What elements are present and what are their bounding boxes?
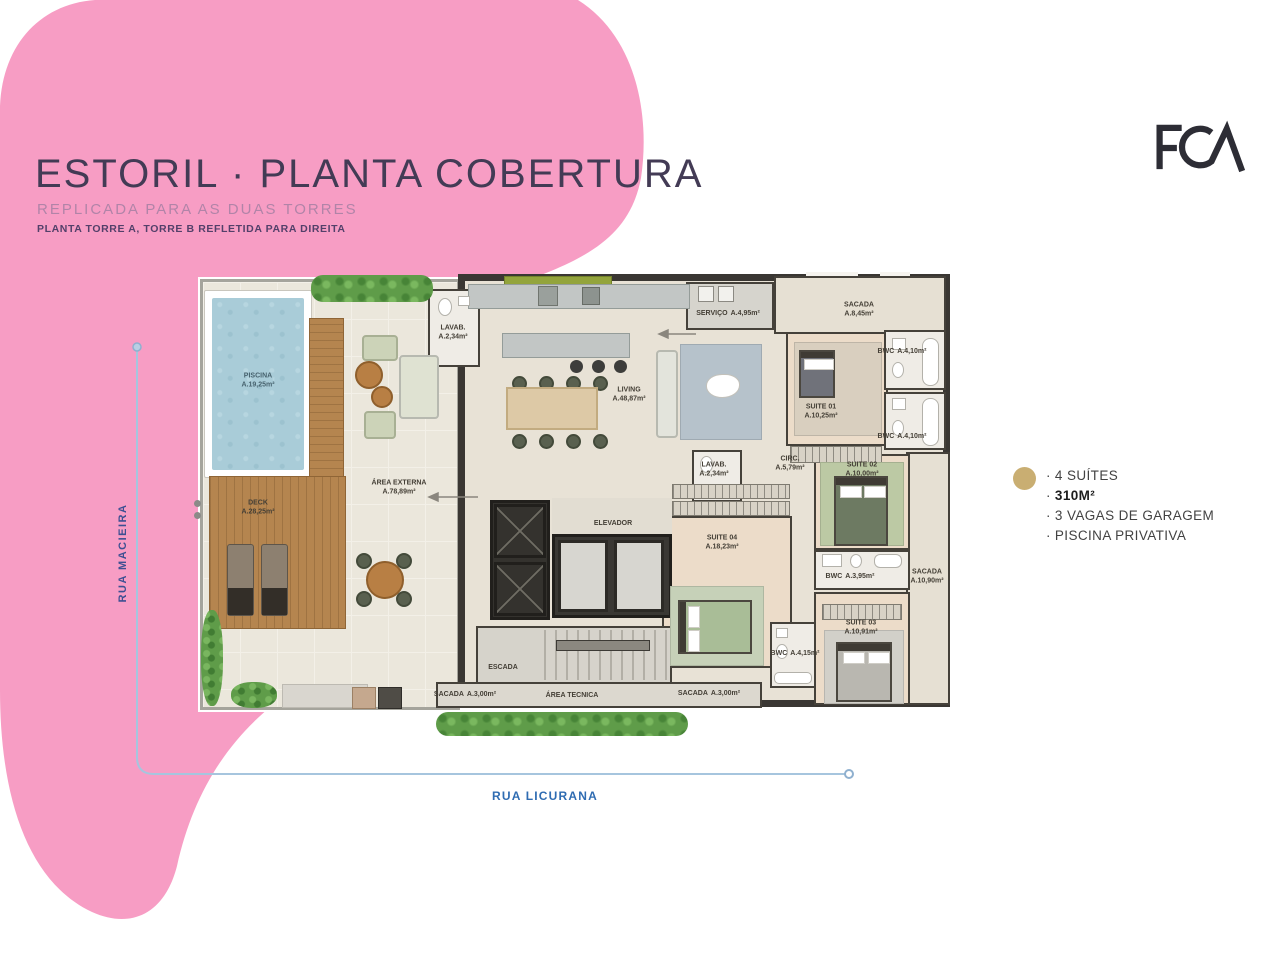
- sink-kitchen: [582, 287, 600, 305]
- fca-logo: [1150, 118, 1246, 183]
- terrace-round-table: [366, 561, 404, 599]
- pin-dot-1: [194, 500, 201, 507]
- service-box-1: [352, 687, 376, 709]
- plant-left: [201, 610, 223, 706]
- room-label-lavab1: LAVAB.A.2,34m²: [438, 325, 467, 342]
- hedge-bottom: [436, 712, 688, 736]
- page-note: PLANTA TORRE A, TORRE B REFLETIDA PARA D…: [37, 223, 346, 235]
- service-box-2: [378, 687, 402, 709]
- outdoor-side-table-2: [371, 386, 393, 408]
- room-label-bwc3: BWCA.3,95m²: [826, 573, 875, 582]
- room-label-sacada2: SACADAA.10,90m²: [910, 569, 943, 586]
- outdoor-armchair-2: [364, 411, 396, 439]
- room-label-sacada3: SACADAA.3,00m²: [434, 691, 496, 700]
- room-label-sacada4: SACADAA.3,00m²: [678, 690, 740, 699]
- feature-pool: ·PISCINA PRIVATIVA: [1046, 526, 1214, 546]
- pin-dot-2: [194, 512, 201, 519]
- room-label-escada: ESCADA: [488, 664, 518, 673]
- feature-suites: ·4 SUÍTES: [1046, 466, 1214, 486]
- kitchen-island: [502, 333, 630, 358]
- dryer: [718, 286, 734, 302]
- lavab1-toilet: [438, 298, 452, 316]
- room-label-elevador: ELEVADOR: [594, 520, 632, 529]
- suite03-wardrobe: [822, 604, 902, 620]
- dining-chair-7: [566, 434, 581, 449]
- stool-1: [570, 360, 583, 373]
- feature-garage: ·3 VAGAS DE GARAGEM: [1046, 506, 1214, 526]
- terrace-chair-1: [356, 553, 372, 569]
- bwc3-tub: [874, 554, 902, 568]
- plant-corner: [231, 682, 277, 708]
- cooktop: [538, 286, 558, 306]
- elevator-car-2: [614, 540, 664, 612]
- room-label-suite01: SUITE 01A.10,25m²: [804, 404, 837, 421]
- stool-3: [614, 360, 627, 373]
- washer: [698, 286, 714, 302]
- room-label-suite03: SUITE 03A.10,91m²: [844, 620, 877, 637]
- page-subtitle: REPLICADA PARA AS DUAS TORRES: [37, 201, 358, 218]
- outdoor-side-table-1: [355, 361, 383, 389]
- dining-chair-5: [512, 434, 527, 449]
- room-label-bwc1: BWCA.4,10m²: [878, 348, 927, 357]
- street-label-rua-macieira: RUA MACIEIRA: [117, 483, 131, 623]
- room-label-living: LIVINGA.48,87m²: [612, 387, 645, 404]
- dining-chair-8: [593, 434, 608, 449]
- bwc2-sink: [892, 398, 906, 410]
- stairs-steps: [544, 630, 668, 680]
- outdoor-sofa: [399, 355, 439, 419]
- terrace-chair-3: [356, 591, 372, 607]
- street-line-end-dot: [845, 770, 853, 778]
- elevator-hall: [552, 498, 672, 534]
- bwc1-toilet: [892, 362, 904, 378]
- street-label-rua-licurana: RUA LICURANA: [492, 789, 598, 803]
- bwc4-tub: [774, 672, 812, 684]
- room-label-circ: CIRC.A.5,79m²: [775, 456, 804, 473]
- sun-lounger-1: [227, 544, 254, 616]
- feature-area: ·310M²: [1046, 486, 1214, 506]
- outdoor-armchair-1: [362, 335, 398, 361]
- bwc4-sink: [776, 628, 788, 638]
- kitchen-counter: [468, 284, 690, 309]
- features-list: ·4 SUÍTES ·310M² ·3 VAGAS DE GARAGEM ·PI…: [1046, 466, 1214, 546]
- dining-table: [506, 387, 598, 430]
- elevator-shaft-1: [494, 504, 546, 558]
- suite02-bed: [834, 476, 888, 546]
- hedge-top: [311, 275, 433, 302]
- fca-logo-icon: [1150, 118, 1246, 178]
- room-label-sacada1: SACADAA.8,45m²: [844, 302, 874, 319]
- gold-bullet-icon: [1013, 467, 1036, 490]
- bwc1-tub: [922, 338, 939, 386]
- room-label-suite04: SUITE 04A.18,23m²: [705, 535, 738, 552]
- room-label-lavab2: LAVAB.A.2,34m²: [699, 462, 728, 479]
- stairs-rail: [556, 640, 650, 651]
- page-title: ESTORIL · PLANTA COBERTURA: [35, 152, 703, 197]
- corridor-wardrobe-2: [672, 501, 790, 516]
- elevator-shaft-2: [494, 562, 546, 616]
- room-label-suite02: SUITE 02A.10,00m²: [845, 462, 878, 479]
- sun-lounger-2: [261, 544, 288, 616]
- room-label-area-externa: ÁREA EXTERNAA.78,89m²: [372, 480, 427, 497]
- suite04-bed: [678, 600, 752, 654]
- lavab1-sink: [458, 296, 470, 306]
- bwc3-sink: [822, 554, 842, 567]
- room-label-deck: DECKA.28,25m²: [241, 500, 274, 517]
- elevator-car-1: [558, 540, 608, 612]
- room-label-bwc4: BWCA.4,15m²: [771, 650, 820, 659]
- room-label-servico: SERVIÇOA.4,95m²: [696, 310, 760, 319]
- room-label-bwc2: BWCA.4,10m²: [878, 433, 927, 442]
- corridor-wardrobe-1: [672, 484, 790, 499]
- suite01-bed: [799, 350, 835, 398]
- bwc3-toilet: [850, 554, 862, 568]
- dining-chair-6: [539, 434, 554, 449]
- suite03-bed: [836, 642, 892, 702]
- living-sofa: [656, 350, 678, 438]
- deck-strip: [309, 318, 344, 478]
- room-label-area-tecnica: ÁREA TECNICA: [546, 692, 599, 701]
- stool-2: [592, 360, 605, 373]
- street-line-start-dot: [133, 343, 141, 351]
- room-label-piscina: PISCINAA.19,25m²: [241, 373, 274, 390]
- slide: ESTORIL · PLANTA COBERTURA REPLICADA PAR…: [0, 0, 1280, 960]
